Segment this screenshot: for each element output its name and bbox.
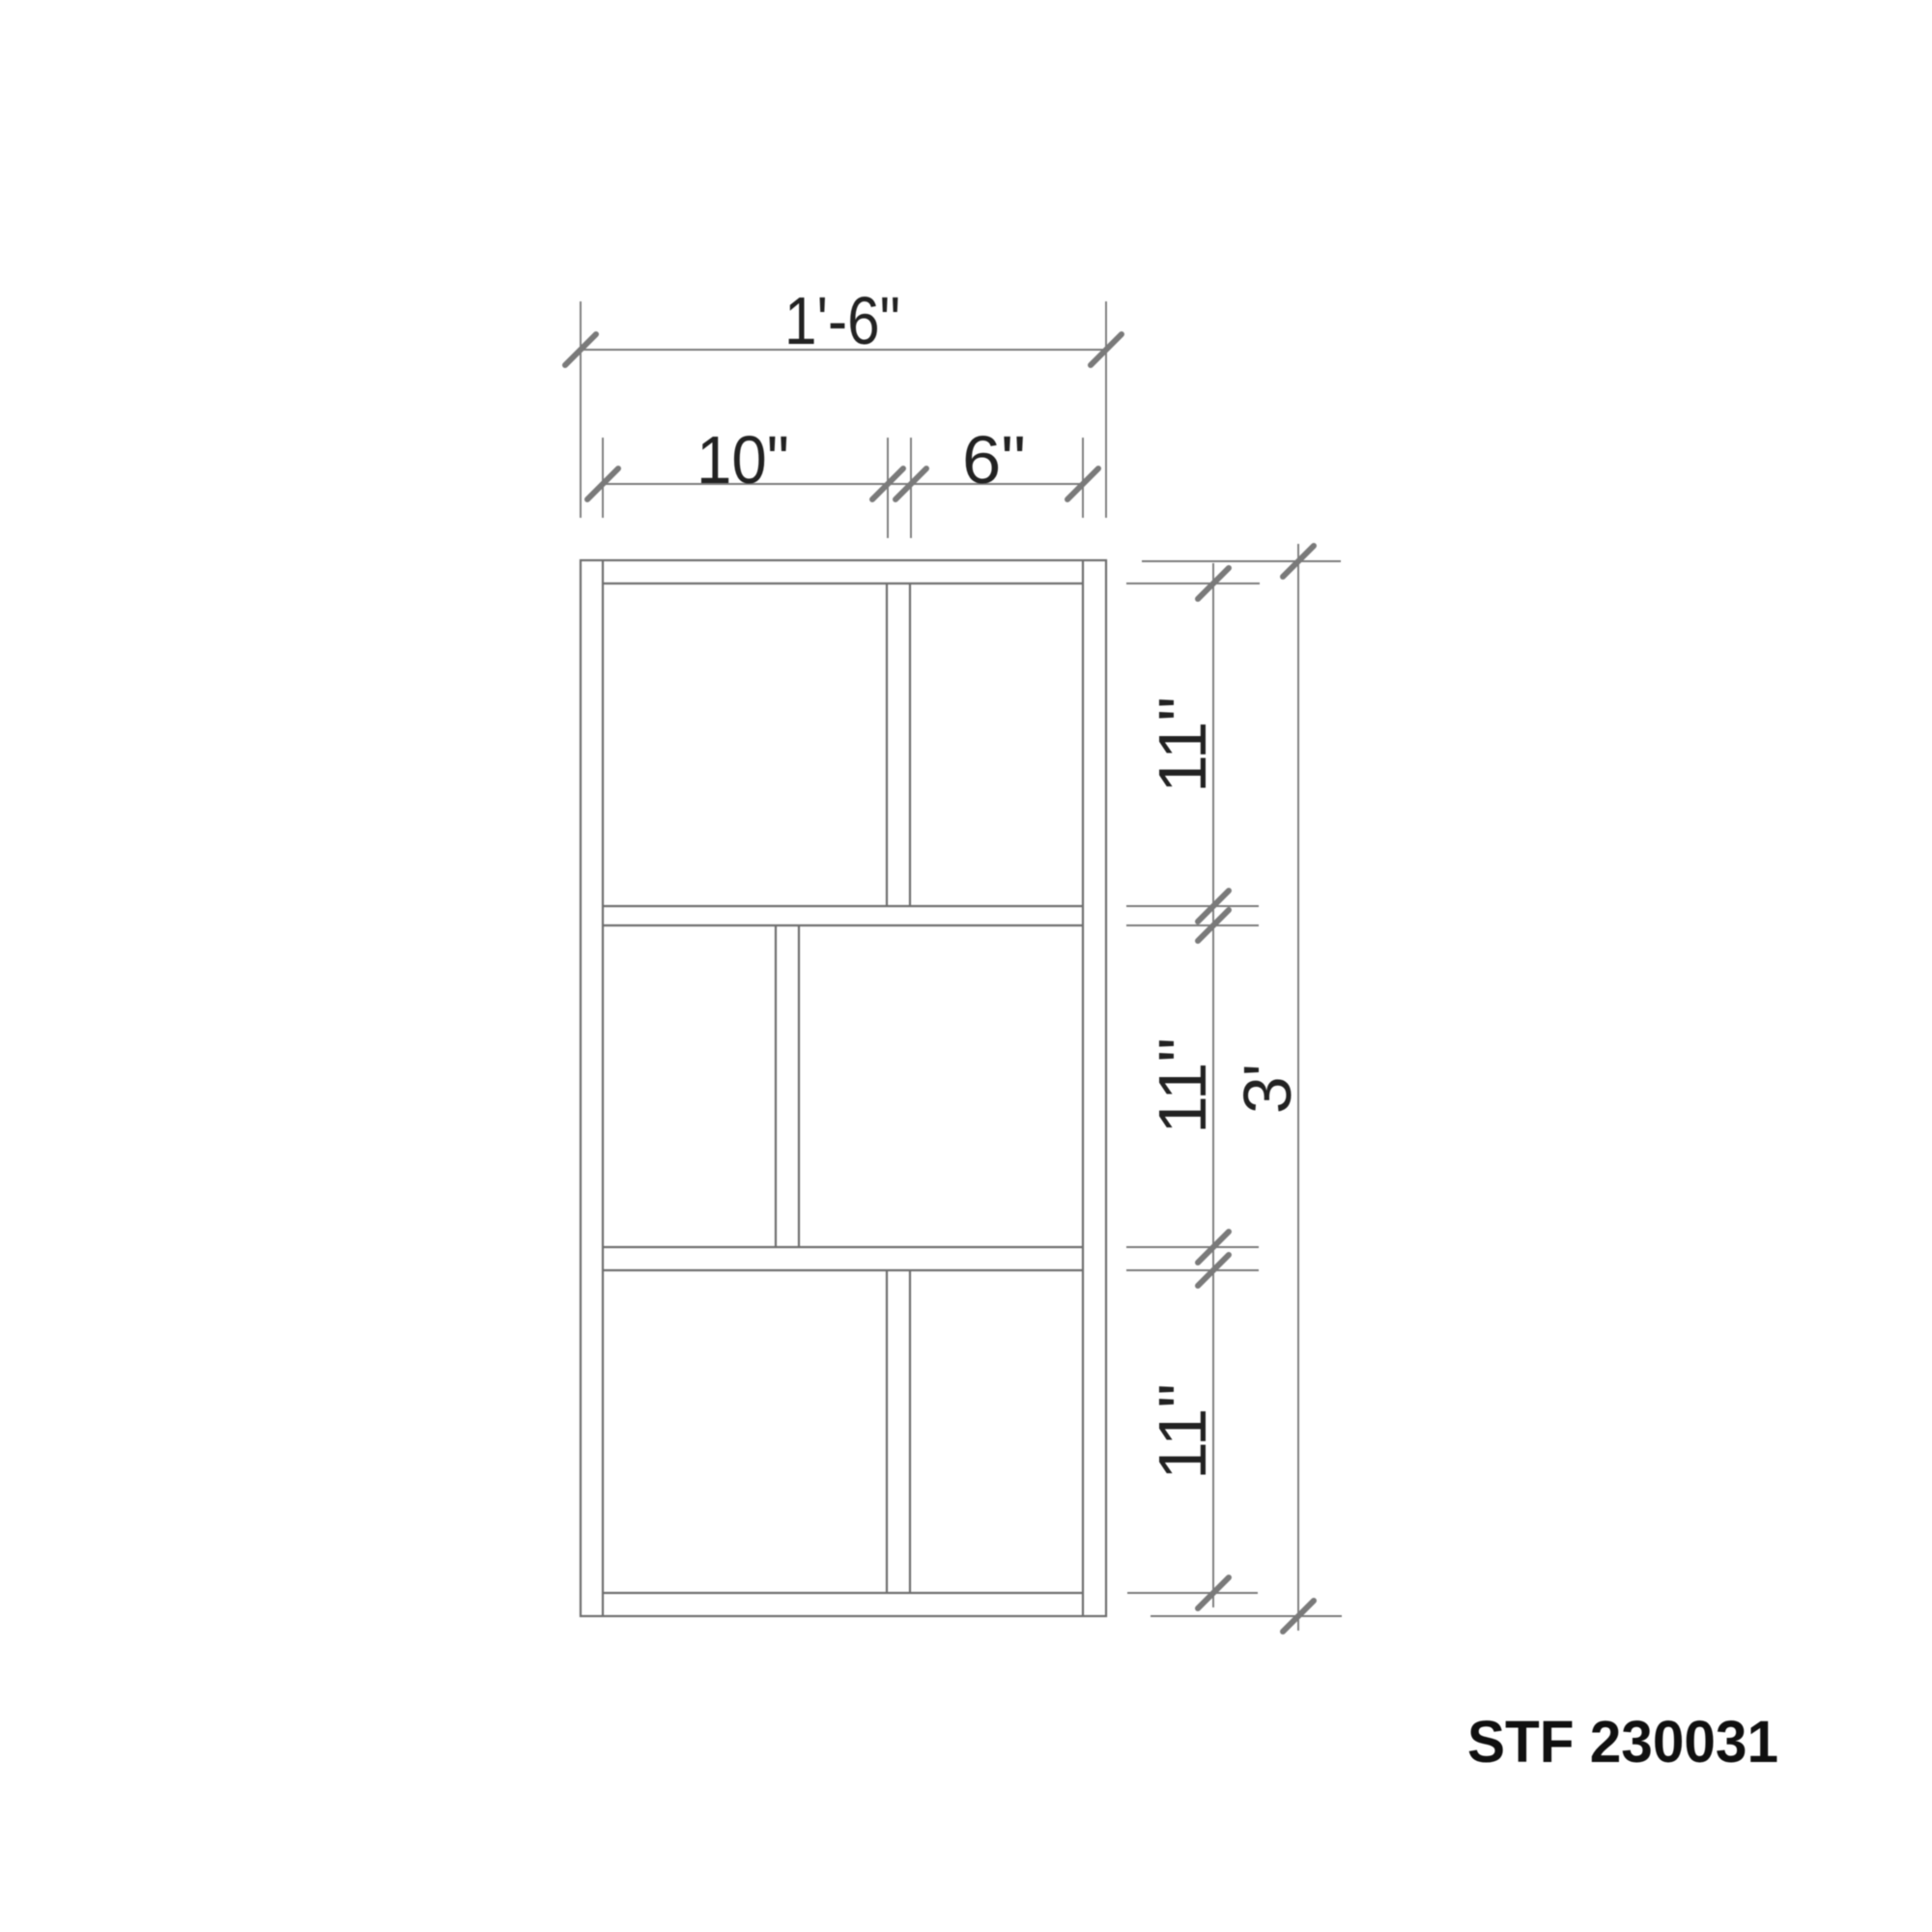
- svg-text:3': 3': [1230, 1064, 1305, 1114]
- svg-text:10": 10": [696, 422, 789, 497]
- svg-text:6": 6": [962, 422, 1026, 497]
- svg-text:1'-6": 1'-6": [784, 283, 900, 358]
- svg-text:STF 230031: STF 230031: [1467, 1709, 1778, 1775]
- svg-text:11": 11": [1145, 1037, 1220, 1134]
- svg-text:11": 11": [1145, 1383, 1220, 1480]
- svg-text:11": 11": [1145, 696, 1220, 793]
